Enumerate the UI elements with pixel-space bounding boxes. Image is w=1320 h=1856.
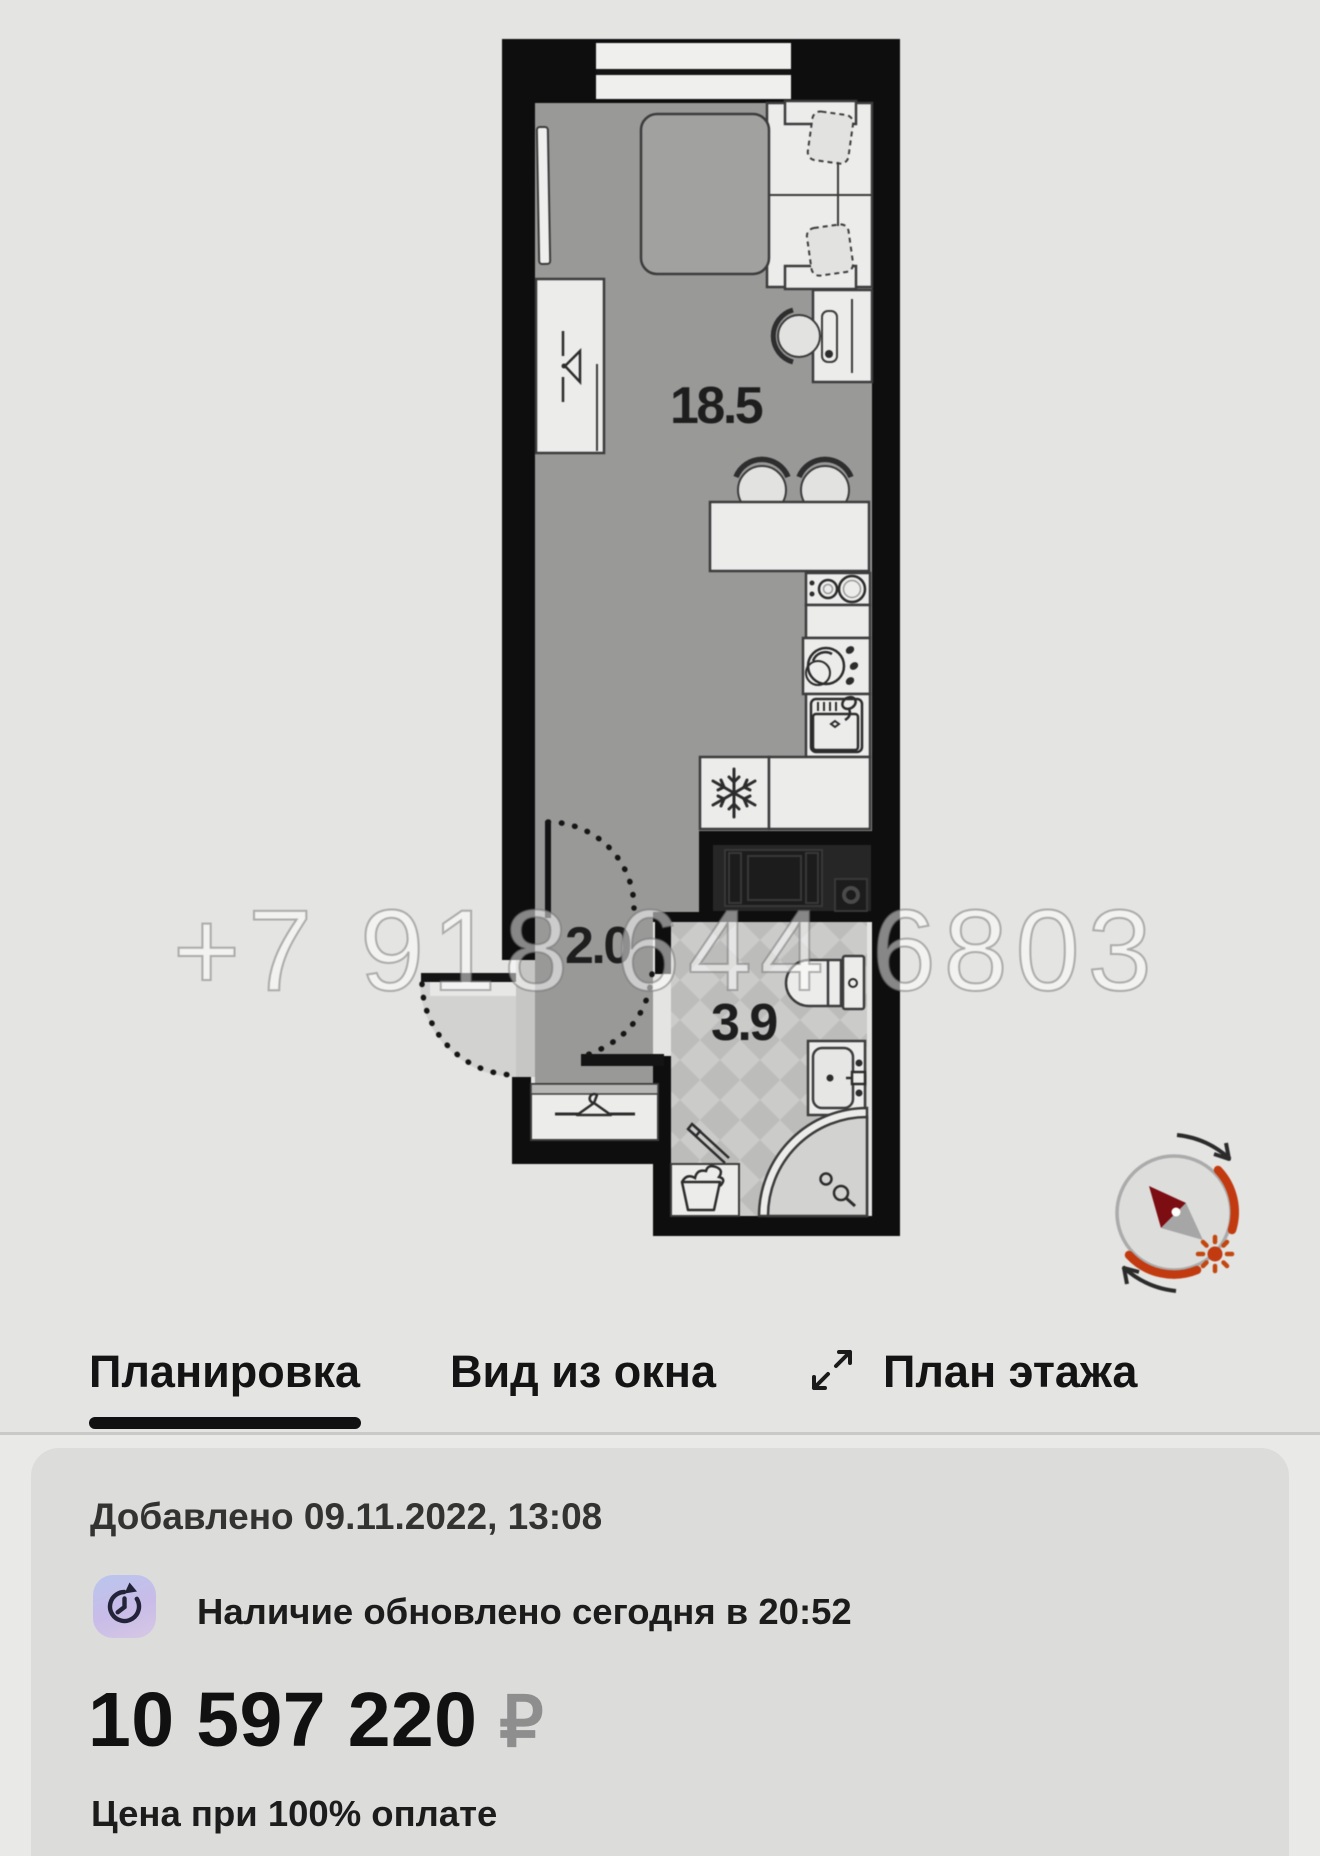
- svg-text:+7 918 644 6803: +7 918 644 6803: [173, 887, 1160, 1015]
- svg-text:18.5: 18.5: [670, 377, 763, 435]
